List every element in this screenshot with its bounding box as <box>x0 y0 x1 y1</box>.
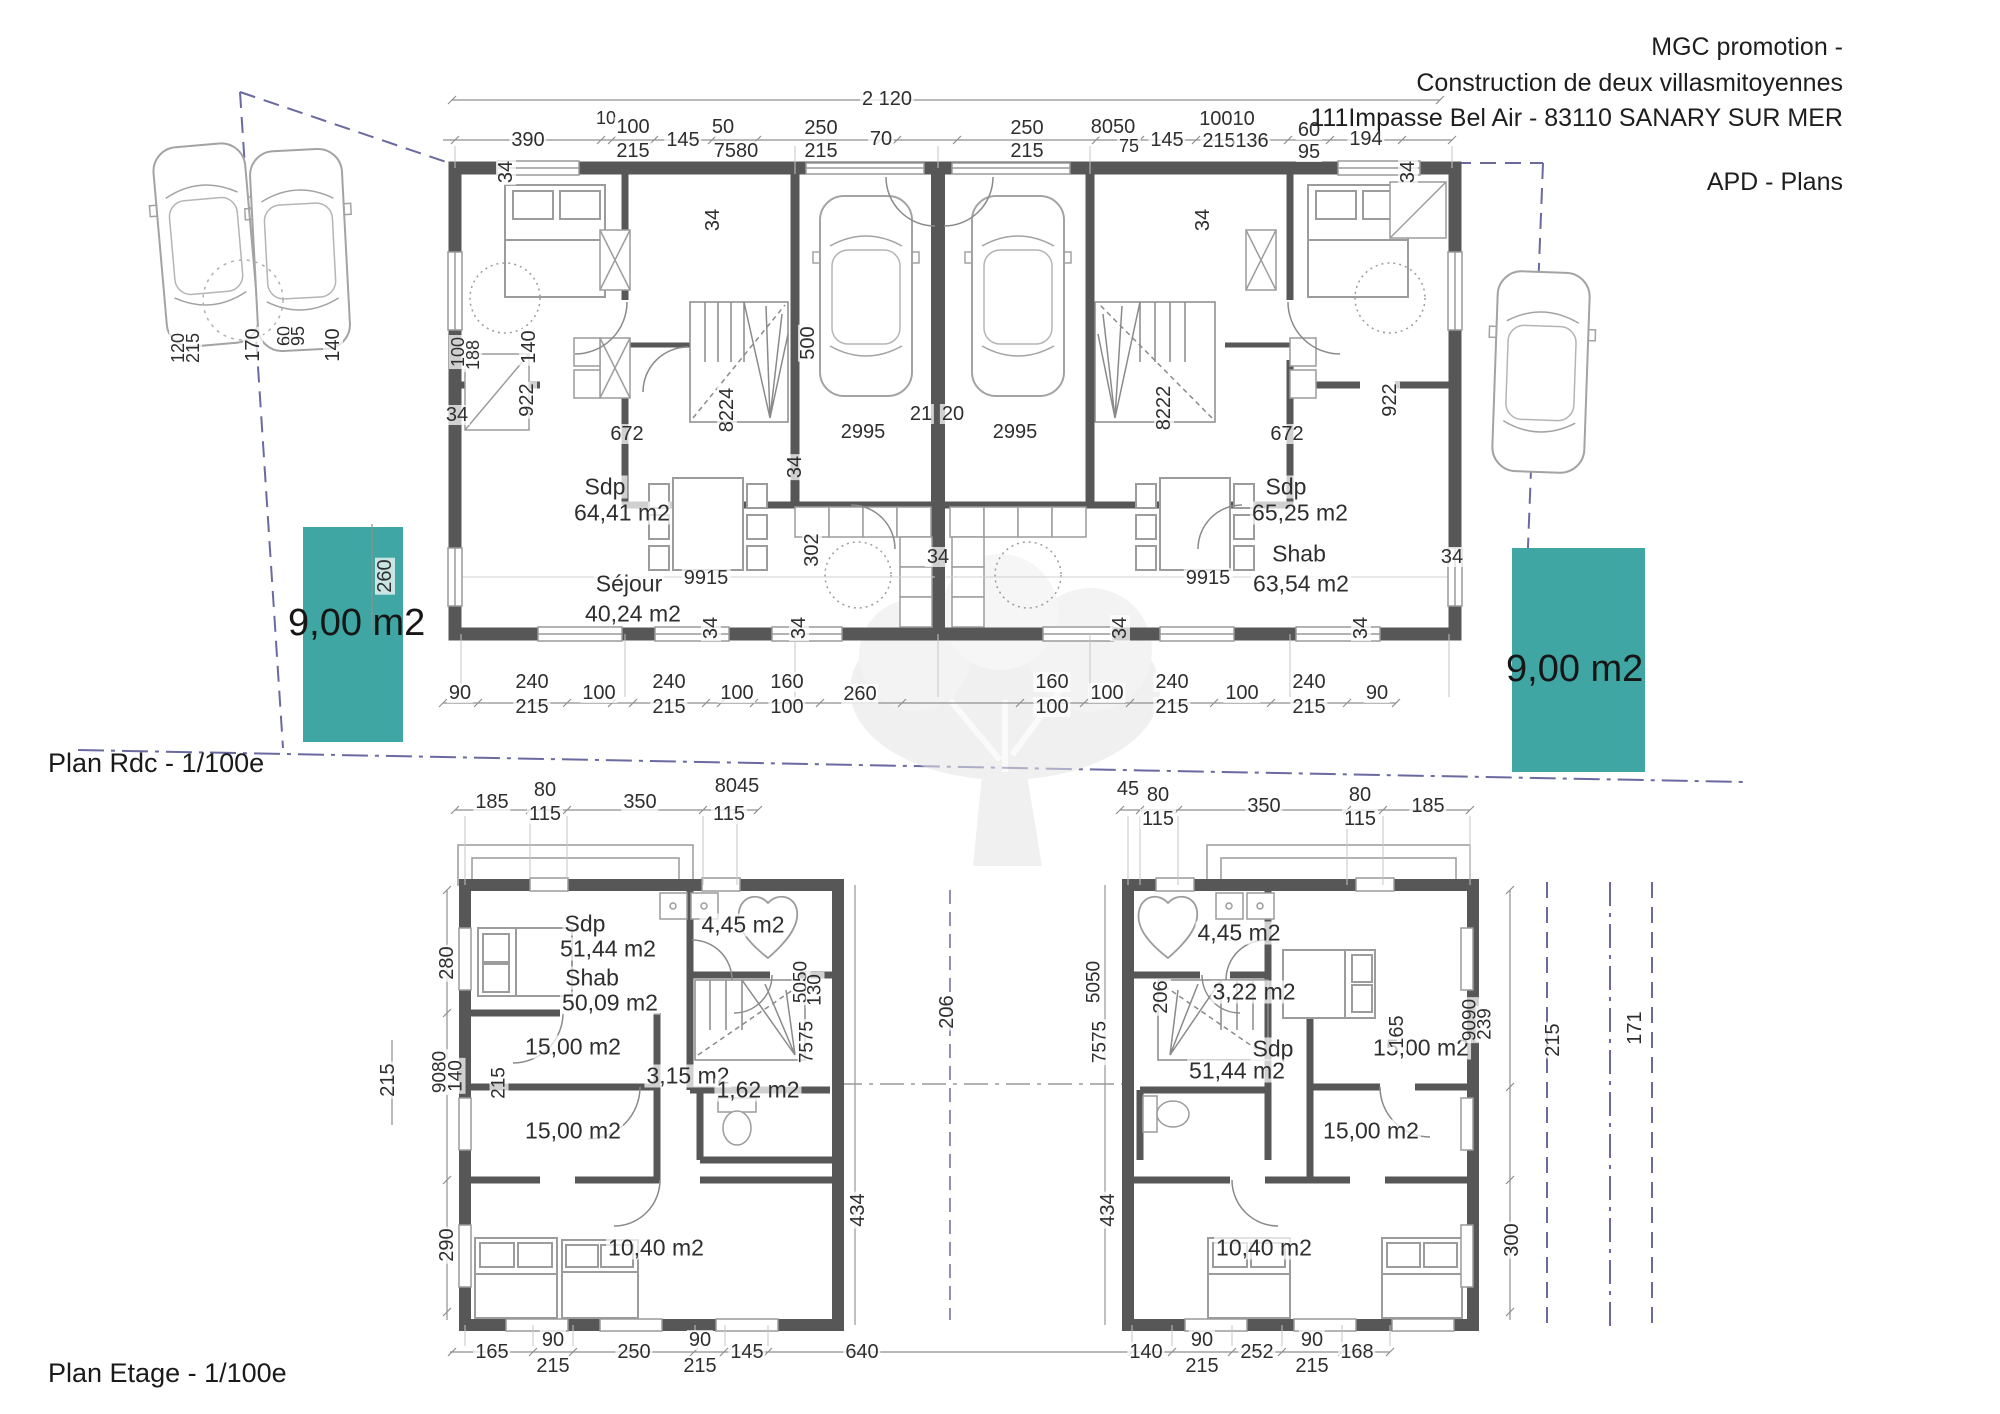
car-garage-left <box>813 196 919 396</box>
rdc-furniture <box>461 182 1448 627</box>
car-outside-left-2 <box>242 147 358 352</box>
plan-drawing <box>0 0 2000 1414</box>
car-outside-right <box>1485 270 1598 474</box>
car-garage-right <box>965 196 1071 396</box>
plan-etage-caption: Plan Etage - 1/100e <box>48 1358 287 1389</box>
rdc-stairs <box>690 302 1215 422</box>
project-title: Construction de deux villasmitoyennes <box>1310 66 1843 102</box>
tree-watermark <box>850 554 1160 866</box>
car-outside-left-1 <box>144 141 267 349</box>
etage-stairs <box>695 980 1268 1060</box>
document-type: APD - Plans <box>1707 168 1843 197</box>
project-address: 111Impasse Bel Air - 83110 SANARY SUR ME… <box>1310 101 1843 137</box>
etage-furniture <box>475 893 1462 1318</box>
floorplan-sheet: 2 12039010100215145507580250215702502158… <box>0 0 2000 1414</box>
title-block: MGC promotion - Construction de deux vil… <box>1310 30 1843 137</box>
garden-right-area-label: 9,00 m2 <box>1506 648 1643 691</box>
garden-left-area-label: 9,00 m2 <box>288 602 425 645</box>
plan-rdc-caption: Plan Rdc - 1/100e <box>48 748 264 779</box>
company-name: MGC promotion - <box>1310 30 1843 66</box>
